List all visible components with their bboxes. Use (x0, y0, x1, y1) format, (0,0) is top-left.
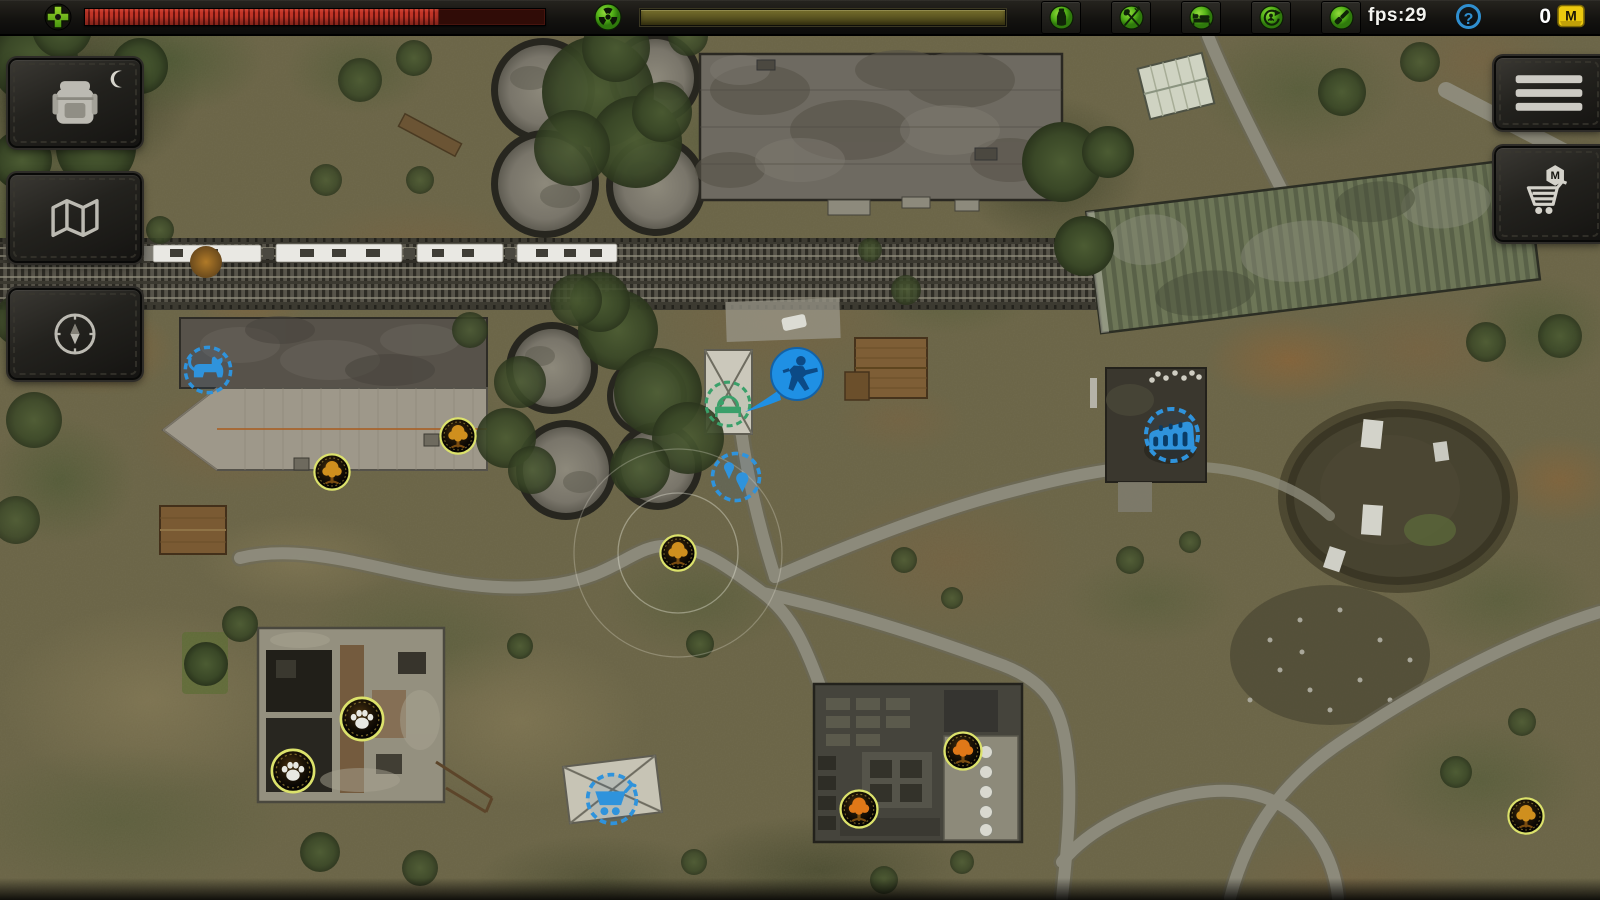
map-icon (45, 188, 105, 248)
inventory-button[interactable] (8, 58, 142, 148)
radiation-bar-fill (641, 10, 1005, 25)
status-icons (1041, 1, 1361, 34)
player-marker[interactable] (733, 340, 833, 416)
forage-marker-5[interactable] (838, 788, 880, 830)
forage-marker-6[interactable] (1506, 796, 1546, 836)
fps-counter: fps:29 (1368, 5, 1427, 27)
health-bar-fill (85, 9, 439, 25)
forage-marker-3[interactable] (658, 533, 698, 573)
forage-marker-2[interactable] (312, 452, 352, 492)
health-cross-icon (44, 3, 72, 31)
health-bar (84, 8, 546, 26)
small-shack (160, 506, 226, 554)
wooden-shack (845, 338, 927, 400)
radiation-bar (640, 9, 1006, 26)
cart-shop-icon: M (1518, 161, 1580, 227)
animal-tracks-marker-2[interactable] (269, 747, 317, 795)
hunger-status-icon (1111, 1, 1151, 34)
animal-tracks-marker-1[interactable] (338, 695, 386, 743)
animal-area-marker[interactable] (181, 343, 235, 397)
svg-text:M: M (1565, 8, 1577, 24)
help-label: ? (1464, 11, 1474, 28)
sleep-status-icon (1181, 1, 1221, 34)
m-box-icon: M (1556, 3, 1586, 30)
help-button[interactable]: ? (1456, 4, 1481, 29)
currency-value: 0 (1539, 5, 1551, 29)
moon-icon (107, 67, 131, 96)
svg-text:M: M (1550, 170, 1559, 182)
currency-display[interactable]: 0 M (1539, 3, 1586, 30)
hamburger-icon (1511, 68, 1587, 118)
fatigue-status-icon (1251, 1, 1291, 34)
navigation-button[interactable] (8, 288, 142, 380)
game-screen: fps:29 ? 0 M M (0, 0, 1600, 900)
hud-topbar: fps:29 ? 0 M (0, 0, 1600, 36)
menu-button[interactable] (1494, 56, 1600, 130)
forage-marker-4[interactable] (942, 730, 984, 772)
map-scene[interactable] (0, 0, 1600, 900)
gear-status-icon (1321, 1, 1361, 34)
thirst-status-icon (1041, 1, 1081, 34)
map-button[interactable] (8, 173, 142, 263)
ruins-marker[interactable] (1141, 404, 1203, 466)
burnt-crater (1286, 409, 1510, 585)
warehouse-building (695, 50, 1062, 215)
shop-button[interactable]: M (1494, 146, 1600, 242)
forage-marker-1[interactable] (438, 416, 478, 456)
travel-points-marker[interactable] (708, 449, 764, 505)
compass-icon (45, 304, 105, 364)
backpack-icon (45, 73, 105, 133)
radiation-icon (594, 3, 622, 31)
trader-marker[interactable] (583, 770, 641, 828)
game-map[interactable] (0, 0, 1600, 900)
